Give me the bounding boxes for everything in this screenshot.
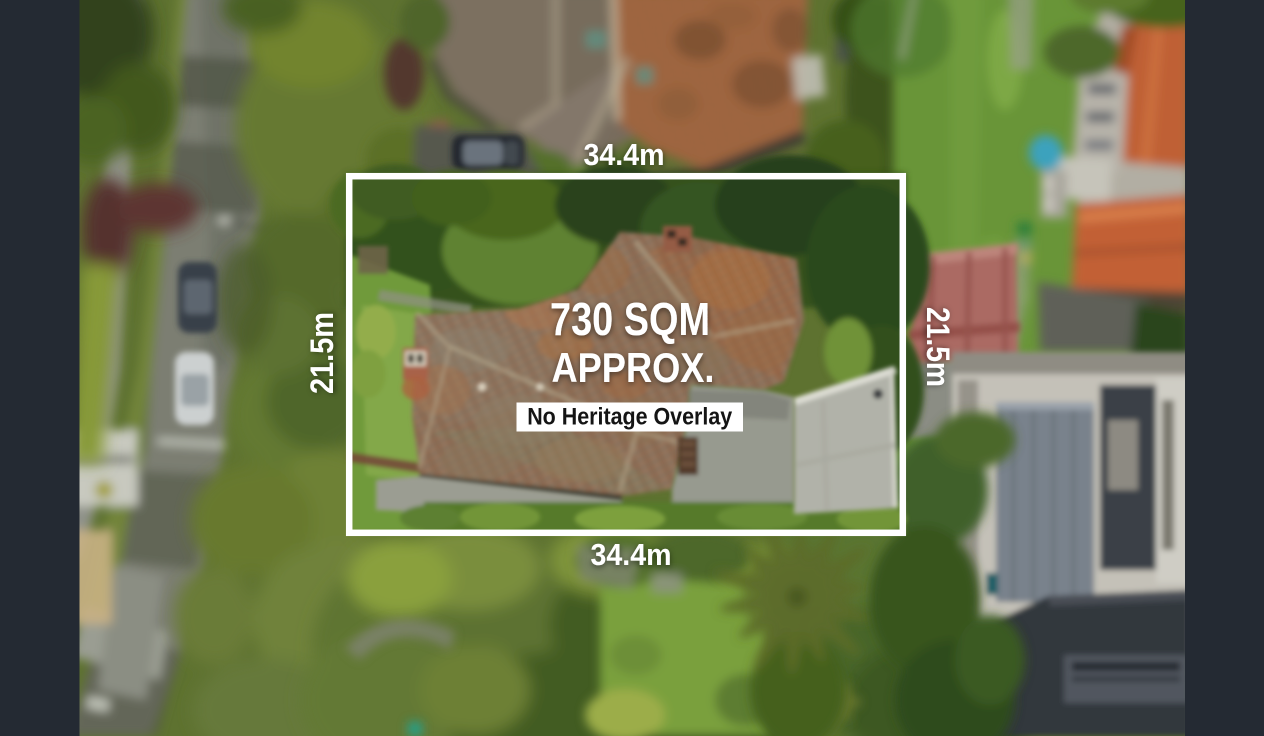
svg-text:21.5m: 21.5m: [304, 312, 340, 394]
svg-text:34.4m: 34.4m: [584, 137, 665, 172]
svg-text:No Heritage Overlay: No Heritage Overlay: [527, 404, 733, 431]
svg-text:34.4m: 34.4m: [591, 537, 672, 572]
svg-text:APPROX.: APPROX.: [552, 344, 715, 391]
svg-text:21.5m: 21.5m: [920, 307, 956, 387]
svg-text:730 SQM: 730 SQM: [550, 293, 710, 345]
